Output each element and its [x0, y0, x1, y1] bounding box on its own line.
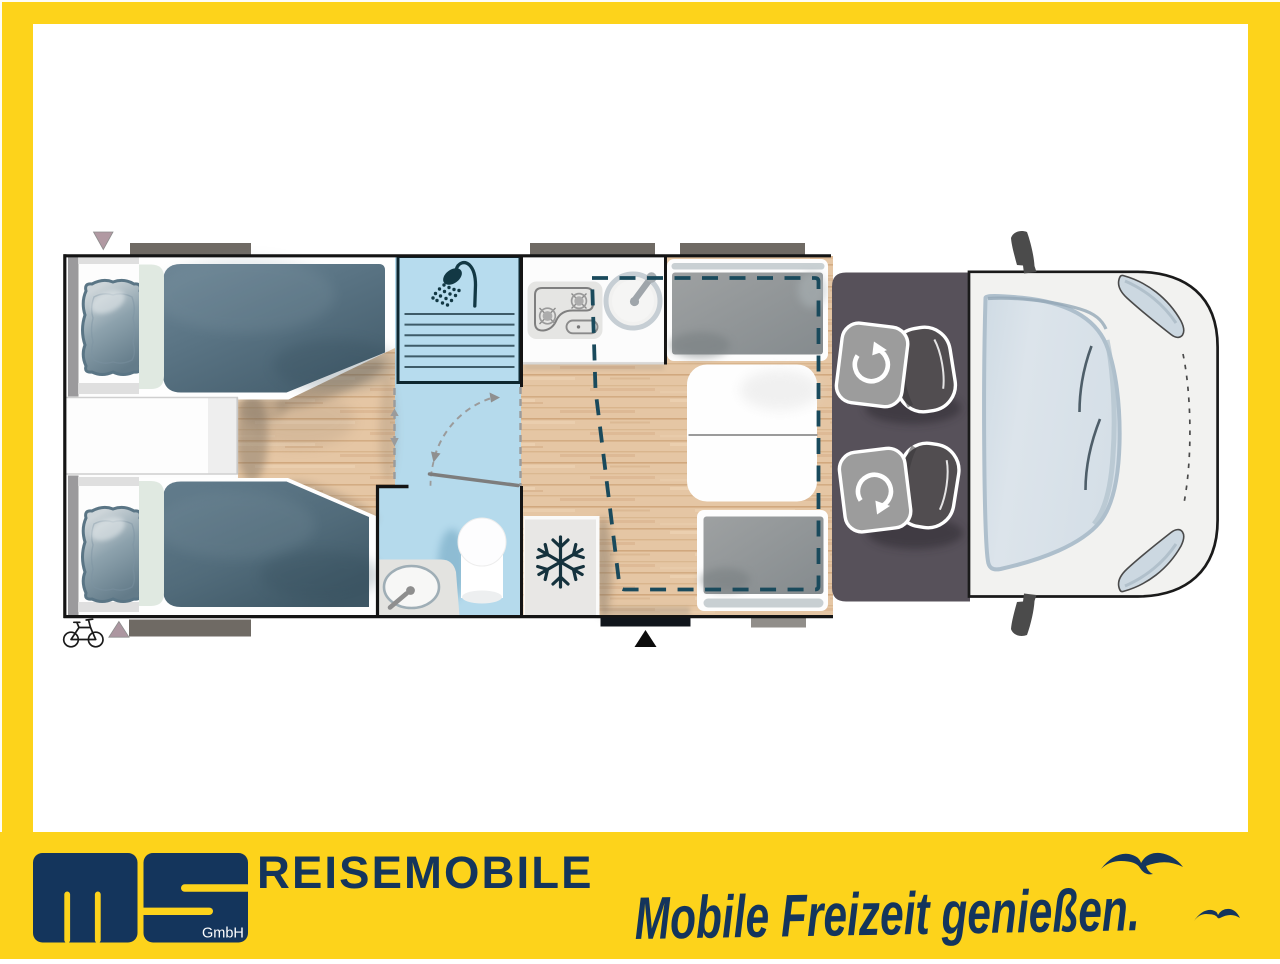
svg-text:Mobile Freizeit genießen.: Mobile Freizeit genießen. [634, 876, 1140, 952]
svg-text:REISEMOBILE: REISEMOBILE [257, 847, 594, 898]
svg-text:GmbH: GmbH [202, 926, 244, 942]
